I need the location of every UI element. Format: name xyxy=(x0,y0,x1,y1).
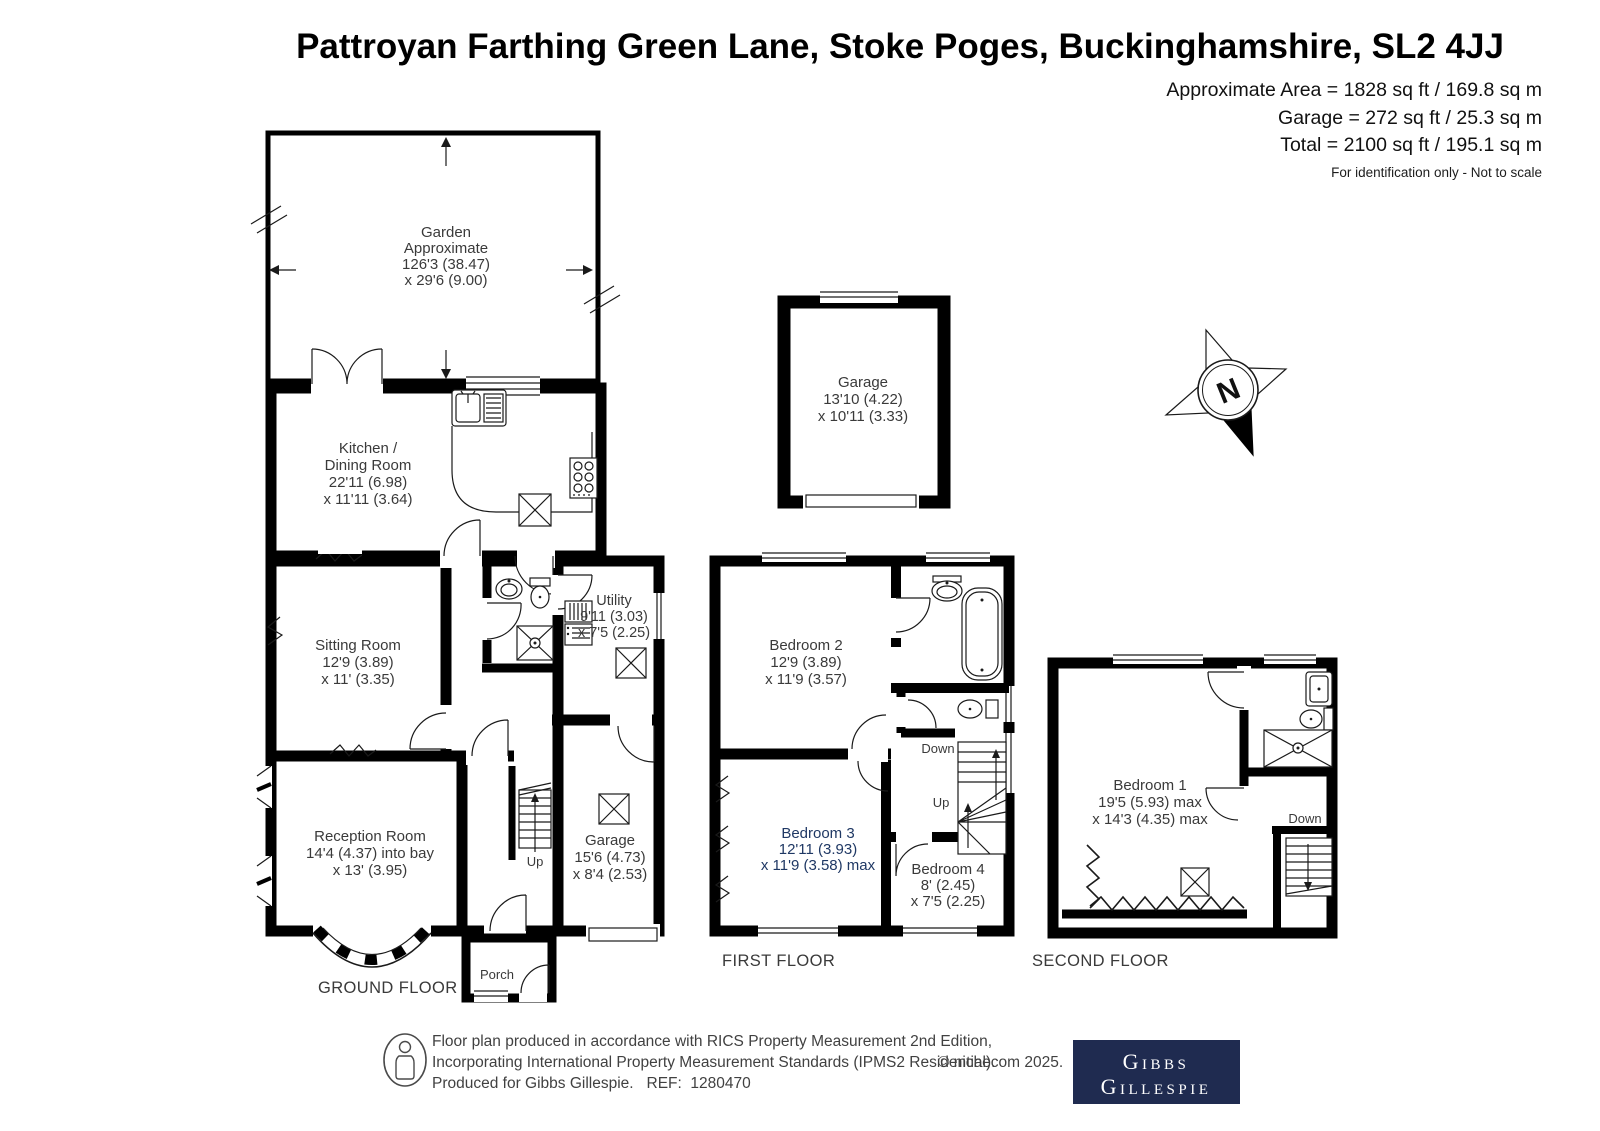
gibbs-gillespie-logo: Gibbs Gillespie xyxy=(1073,1040,1240,1104)
garage-ground-label-line: 15'6 (4.73) xyxy=(574,849,645,866)
page-title: Pattroyan Farthing Green Lane, Stoke Pog… xyxy=(296,27,1504,66)
second-floor-title: SECOND FLOOR xyxy=(1032,952,1169,970)
sitting-room-label-line: Sitting Room xyxy=(315,637,401,654)
window xyxy=(653,593,665,639)
logo-text-line: Gillespie xyxy=(1101,1074,1212,1099)
hob-icon xyxy=(570,458,597,498)
rooflight-icon xyxy=(599,794,629,824)
garage-door xyxy=(586,924,660,946)
bedroom1-label-line: Bedroom 1 xyxy=(1113,777,1186,794)
bedroom2-label: Bedroom 2 12'9 (3.89) x 11'9 (3.57) xyxy=(765,637,847,688)
bay-window xyxy=(313,923,431,967)
bedroom3-label-line: x 11'9 (3.58) max xyxy=(761,857,876,874)
sitting-room-label: Sitting Room 12'9 (3.89) x 11' (3.35) xyxy=(315,637,401,688)
footer-line-3: Produced for Gibbs Gillespie. REF: 12804… xyxy=(432,1075,751,1092)
garage-ground-label-line: Garage xyxy=(585,832,635,849)
area-garage: Garage = 272 sq ft / 25.3 sq m xyxy=(1278,107,1542,129)
area-total: Total = 2100 sq ft / 195.1 sq m xyxy=(1280,134,1542,156)
rooflight-icon xyxy=(616,648,646,678)
kitchen-label-line: Dining Room xyxy=(325,457,412,474)
toilet-icon xyxy=(530,578,550,608)
utility-label-line: Utility xyxy=(596,593,632,609)
stairs-up-label: Up xyxy=(933,795,950,810)
garage-ground-label-line: x 8'4 (2.53) xyxy=(573,866,648,883)
stairs-down-label: Down xyxy=(921,741,954,756)
floorplan-page: Pattroyan Farthing Green Lane, Stoke Pog… xyxy=(0,0,1600,1131)
garage-door xyxy=(803,492,919,510)
footer-line-2: Incorporating International Property Mea… xyxy=(432,1054,995,1071)
scale-disclaimer: For identification only - Not to scale xyxy=(1331,165,1542,180)
detached-garage-label-line: 13'10 (4.22) xyxy=(823,391,903,408)
bedroom4-label-line: 8' (2.45) xyxy=(921,877,976,894)
shower-icon xyxy=(1264,730,1332,767)
bedroom3-label-line: 12'11 (3.93) xyxy=(779,841,857,858)
garden-label-line: 126'3 (38.47) xyxy=(402,256,490,273)
detached-garage-plan: Garage 13'10 (4.22) x 10'11 (3.33) xyxy=(784,288,944,510)
shower-icon xyxy=(517,626,553,660)
kitchen-label-line: x 11'11 (3.64) xyxy=(323,491,412,508)
bedroom4-label: Bedroom 4 8' (2.45) x 7'5 (2.25) xyxy=(911,861,986,910)
bedroom2-label-line: Bedroom 2 xyxy=(769,637,842,654)
toilet-icon xyxy=(958,700,998,718)
garden-plan: Garden Approximate 126'3 (38.47) x 29'6 … xyxy=(251,133,620,381)
bedroom3-label-line: Bedroom 3 xyxy=(781,825,854,842)
stairs-icon xyxy=(958,742,1006,854)
stairs-icon xyxy=(519,783,551,852)
ground-floor-plan: Kitchen / Dining Room 22'11 (6.98) x 11'… xyxy=(257,349,665,1002)
basin-icon xyxy=(932,576,962,601)
first-floor-plan: Bedroom 2 12'9 (3.89) x 11'9 (3.57) Bedr… xyxy=(715,550,1015,970)
basin-icon xyxy=(1306,672,1332,706)
utility-label-line: 9'11 (3.03) xyxy=(580,609,648,625)
toilet-icon xyxy=(1300,708,1333,730)
footer-copyright: © nichecom 2025. xyxy=(938,1054,1063,1071)
ground-floor-title: GROUND FLOOR xyxy=(318,979,458,997)
floorplan-canvas: Pattroyan Farthing Green Lane, Stoke Pog… xyxy=(0,0,1600,1131)
logo-text-line: Gibbs xyxy=(1123,1049,1190,1074)
porch-label: Porch xyxy=(480,967,514,982)
garden-label-line: x 29'6 (9.00) xyxy=(405,272,488,289)
reception-room-label-line: 14'4 (4.37) into bay xyxy=(306,845,434,862)
window xyxy=(820,288,898,303)
area-approximate: Approximate Area = 1828 sq ft / 169.8 sq… xyxy=(1166,79,1542,101)
footer-line-1: Floor plan produced in accordance with R… xyxy=(432,1033,992,1050)
second-floor-plan: Bedroom 1 19'5 (5.93) max x 14'3 (4.35) … xyxy=(1032,652,1333,970)
kitchen-label-line: Kitchen / xyxy=(339,440,398,457)
bedroom2-label-line: x 11'9 (3.57) xyxy=(765,671,847,688)
bedroom4-label-line: x 7'5 (2.25) xyxy=(911,893,986,910)
rooflight-icon xyxy=(519,494,551,526)
basin-icon xyxy=(496,579,522,599)
stairs-up-label: Up xyxy=(527,854,544,869)
rooflight-icon xyxy=(1181,868,1209,896)
bath-icon xyxy=(962,588,1002,680)
kitchen-label-line: 22'11 (6.98) xyxy=(329,474,407,491)
bedroom4-label-line: Bedroom 4 xyxy=(911,861,984,878)
bedroom1-label-line: 19'5 (5.93) max xyxy=(1098,794,1202,811)
garden-label-line: Garden xyxy=(421,224,471,241)
detached-garage-label-line: Garage xyxy=(838,374,888,391)
footer: Floor plan produced in accordance with R… xyxy=(384,1033,1240,1104)
person-scale-icon xyxy=(384,1034,426,1086)
bedroom1-label-line: x 14'3 (4.35) max xyxy=(1092,811,1208,828)
kitchen-sink-icon xyxy=(452,390,506,426)
first-floor-title: FIRST FLOOR xyxy=(722,952,835,970)
reception-room-label-line: Reception Room xyxy=(314,828,426,845)
garden-label-line: Approximate xyxy=(404,240,488,257)
stairs-icon xyxy=(1286,838,1332,896)
area-summary: Approximate Area = 1828 sq ft / 169.8 sq… xyxy=(1166,79,1542,180)
stairs-down-label: Down xyxy=(1288,811,1321,826)
utility-label-line: x 7'5 (2.25) xyxy=(578,625,650,641)
sitting-room-label-line: 12'9 (3.89) xyxy=(322,654,393,671)
bedroom2-label-line: 12'9 (3.89) xyxy=(770,654,841,671)
sitting-room-label-line: x 11' (3.35) xyxy=(321,671,394,688)
detached-garage-label-line: x 10'11 (3.33) xyxy=(818,408,908,425)
compass-icon: N xyxy=(1166,330,1286,455)
reception-room-label-line: x 13' (3.95) xyxy=(333,862,408,879)
